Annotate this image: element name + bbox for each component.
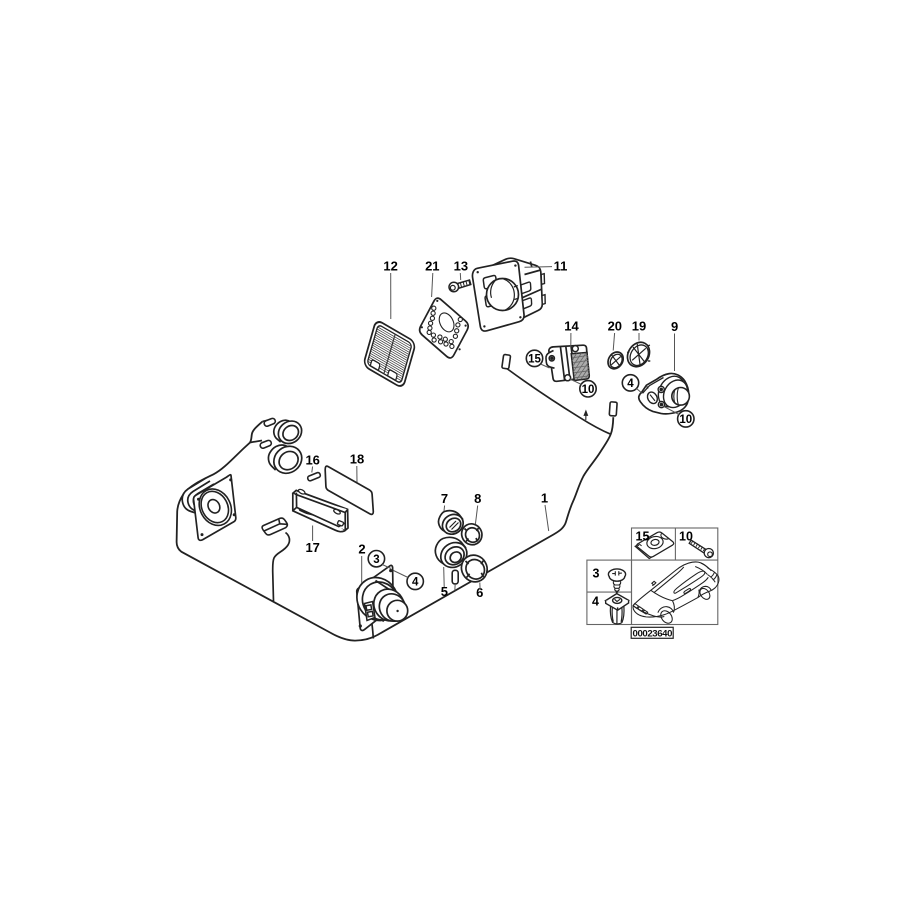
svg-text:13: 13 bbox=[454, 259, 468, 274]
svg-text:9: 9 bbox=[671, 319, 678, 334]
svg-text:17: 17 bbox=[305, 540, 319, 555]
svg-text:21: 21 bbox=[425, 259, 439, 274]
svg-text:3: 3 bbox=[373, 554, 379, 566]
svg-text:4: 4 bbox=[412, 577, 419, 589]
svg-text:7: 7 bbox=[441, 491, 448, 506]
svg-text:2: 2 bbox=[358, 542, 365, 557]
svg-text:1: 1 bbox=[541, 491, 548, 506]
svg-text:16: 16 bbox=[305, 453, 319, 468]
svg-text:4: 4 bbox=[627, 378, 634, 390]
svg-text:10: 10 bbox=[582, 384, 595, 396]
svg-text:00023640: 00023640 bbox=[633, 629, 673, 640]
svg-text:4: 4 bbox=[592, 595, 599, 609]
svg-text:12: 12 bbox=[383, 259, 397, 274]
svg-text:3: 3 bbox=[593, 567, 600, 581]
svg-text:10: 10 bbox=[679, 414, 692, 426]
svg-text:14: 14 bbox=[564, 319, 579, 334]
svg-text:18: 18 bbox=[350, 452, 364, 467]
svg-text:19: 19 bbox=[632, 319, 646, 334]
svg-text:11: 11 bbox=[554, 259, 568, 274]
svg-text:8: 8 bbox=[474, 491, 481, 506]
svg-text:15: 15 bbox=[528, 354, 541, 366]
svg-text:15: 15 bbox=[636, 530, 650, 544]
svg-text:20: 20 bbox=[608, 319, 622, 334]
